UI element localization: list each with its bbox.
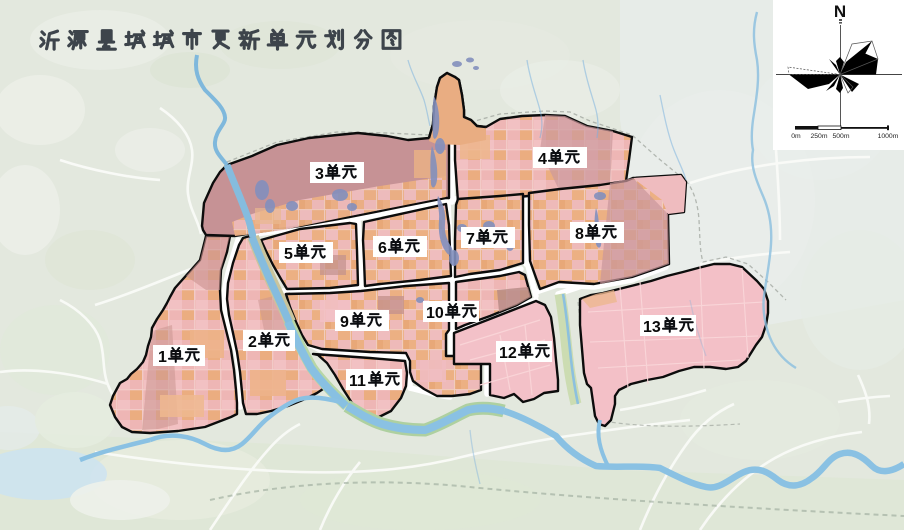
svg-text:12: 12 (499, 345, 517, 362)
svg-text:6: 6 (378, 240, 387, 257)
svg-text:13: 13 (643, 319, 661, 336)
svg-text:5: 5 (284, 246, 293, 263)
svg-text:9: 9 (340, 314, 349, 331)
svg-text:1: 1 (158, 349, 167, 366)
svg-text:11: 11 (349, 373, 366, 390)
svg-text:8: 8 (575, 226, 584, 243)
svg-text:7: 7 (466, 231, 475, 248)
svg-text:10: 10 (426, 305, 444, 322)
svg-text:N: N (834, 2, 846, 21)
svg-text:1000m: 1000m (878, 133, 899, 140)
svg-text:4: 4 (538, 151, 547, 168)
svg-text:2: 2 (248, 334, 257, 351)
svg-text:250m: 250m (810, 133, 827, 140)
svg-text:500m: 500m (832, 133, 849, 140)
svg-text:3: 3 (315, 166, 324, 183)
svg-text:0m: 0m (791, 133, 801, 140)
